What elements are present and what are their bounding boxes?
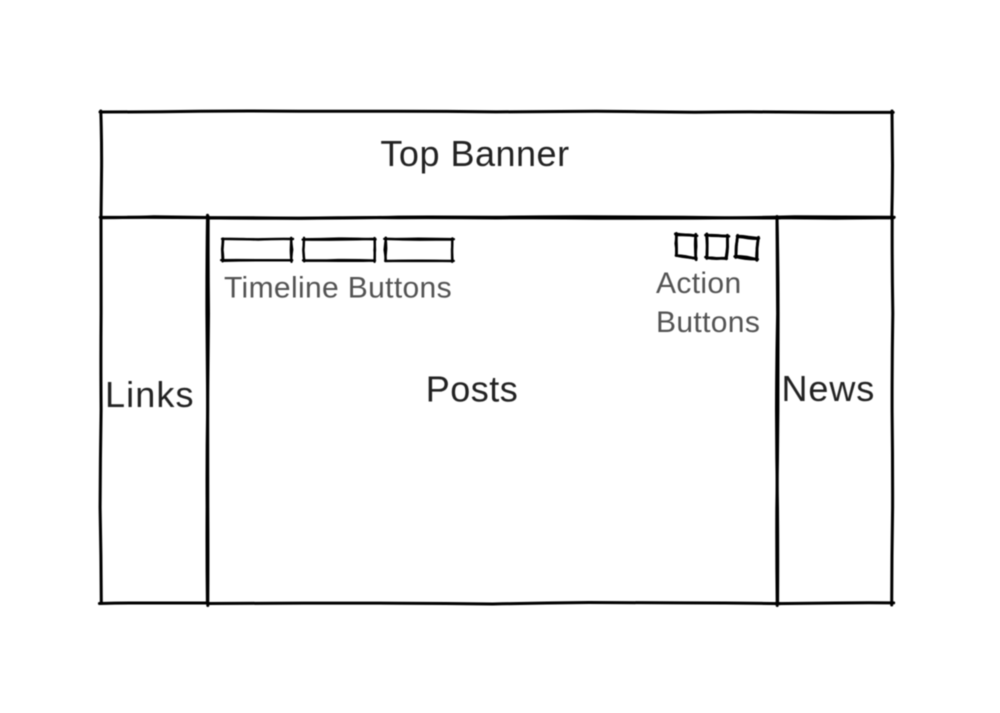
svg-text:Links: Links	[105, 374, 195, 415]
svg-text:Posts: Posts	[426, 369, 519, 410]
svg-text:News: News	[782, 368, 876, 409]
svg-text:Top Banner: Top Banner	[380, 133, 569, 174]
svg-text:Action: Action	[656, 267, 741, 300]
svg-text:Timeline Buttons: Timeline Buttons	[224, 272, 452, 305]
svg-text:Buttons: Buttons	[656, 306, 760, 339]
